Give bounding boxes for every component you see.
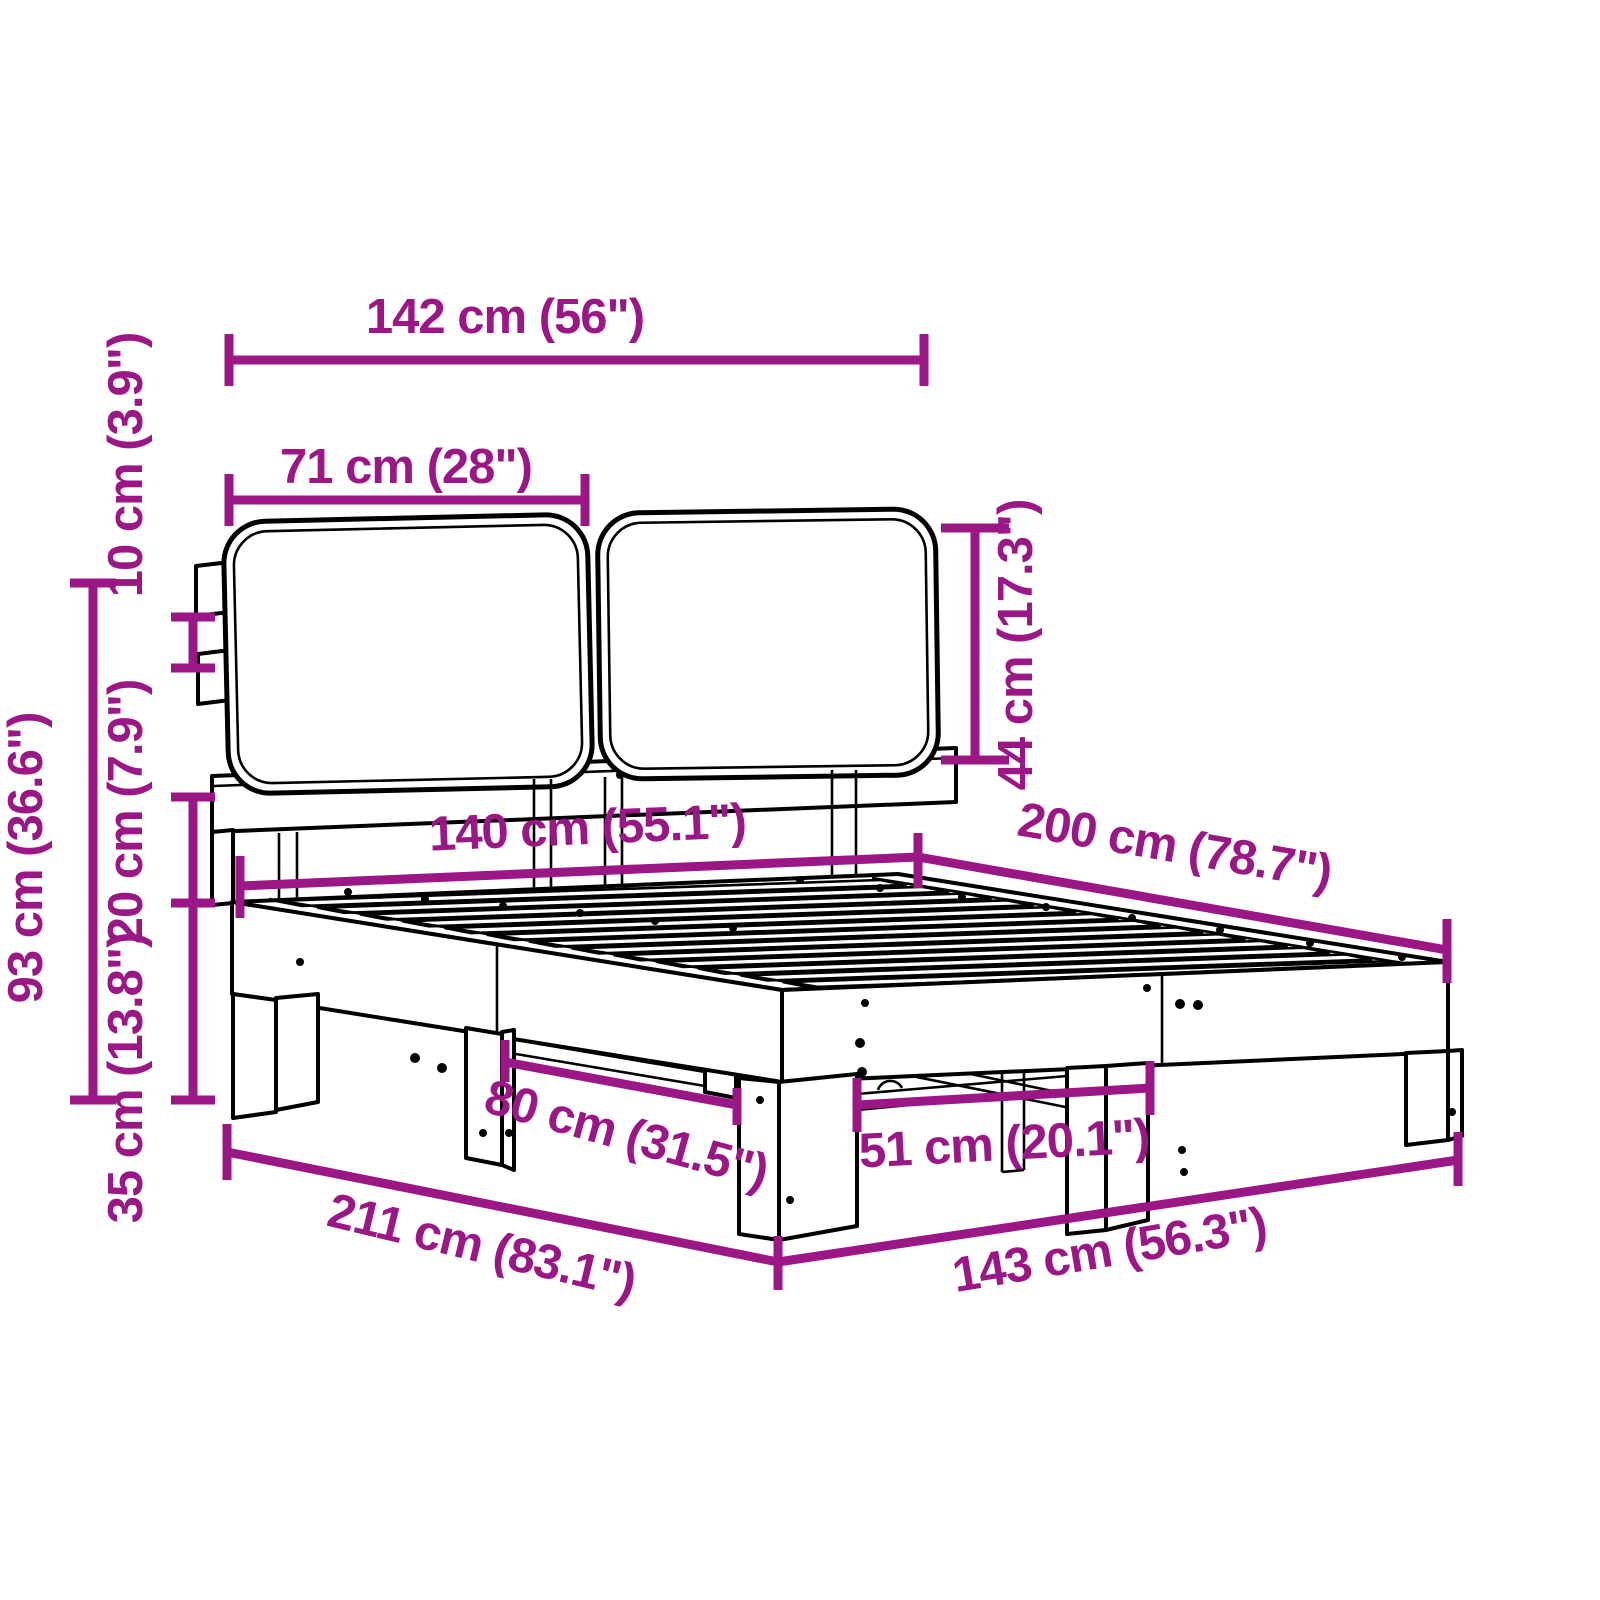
dimension-bracket-spacing: 10 cm (3.9") — [99, 333, 215, 668]
diagram-canvas: 142 cm (56") 71 cm (28") 44 cm (17.3") 1… — [0, 0, 1600, 1600]
dim-label-headboard-total-width: 142 cm (56") — [366, 290, 644, 344]
dimension-clearance-and-frame-height: 20 cm (7.9") 35 cm (13.8") — [99, 680, 215, 1224]
dimension-headboard-total-width: 142 cm (56") — [229, 290, 924, 386]
dim-label-headboard-height: 93 cm (36.6") — [0, 713, 53, 1004]
dim-label-bracket-spacing: 10 cm (3.9") — [99, 333, 153, 598]
leg-foot-right — [1406, 1050, 1462, 1145]
bed-dimension-diagram: 142 cm (56") 71 cm (28") 44 cm (17.3") 1… — [0, 0, 1600, 1600]
dim-label-cushion-height: 44 cm (17.3") — [989, 500, 1043, 791]
dim-label-clearance-under-headboard: 20 cm (7.9") — [99, 680, 153, 945]
leg-head-left — [233, 994, 318, 1118]
headboard-cushion-left — [223, 514, 593, 794]
headboard-cushion-right — [597, 509, 939, 780]
dim-label-cushion-width: 71 cm (28") — [280, 440, 532, 494]
dim-label-frame-height: 35 cm (13.8") — [99, 933, 153, 1224]
